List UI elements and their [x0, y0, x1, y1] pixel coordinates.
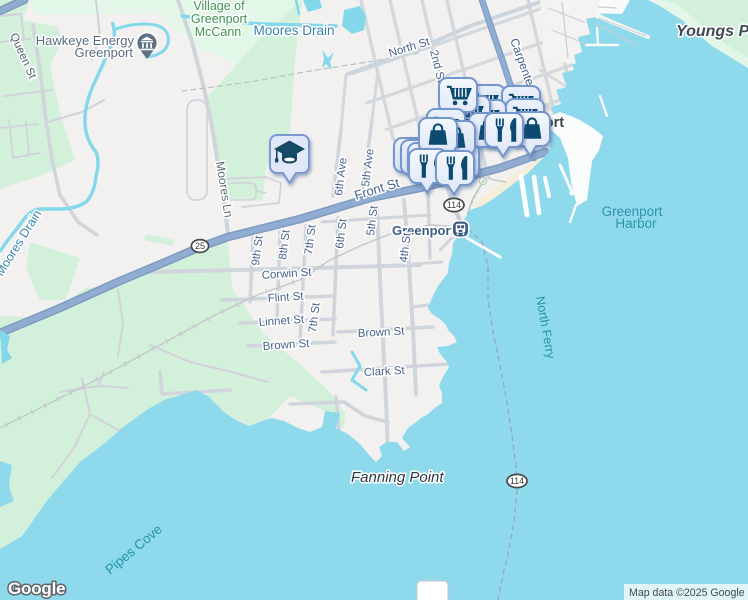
- svg-text:Harbor: Harbor: [615, 216, 657, 231]
- svg-text:Clark St: Clark St: [364, 365, 406, 379]
- svg-text:Fanning Point: Fanning Point: [351, 469, 444, 486]
- svg-text:Moores Drain: Moores Drain: [253, 23, 334, 38]
- svg-text:McCann: McCann: [195, 25, 242, 39]
- svg-text:Greenport: Greenport: [74, 45, 133, 60]
- svg-text:Brown St: Brown St: [358, 326, 406, 340]
- svg-text:Greenport: Greenport: [191, 12, 248, 26]
- svg-text:114: 114: [510, 476, 524, 486]
- svg-text:Map data ©2025 Google: Map data ©2025 Google: [629, 587, 745, 599]
- svg-text:Youngs Po: Youngs Po: [676, 23, 748, 40]
- svg-text:Flint St: Flint St: [267, 290, 304, 305]
- svg-text:114: 114: [447, 200, 461, 210]
- svg-text:25: 25: [195, 241, 205, 251]
- svg-text:Google: Google: [8, 579, 65, 598]
